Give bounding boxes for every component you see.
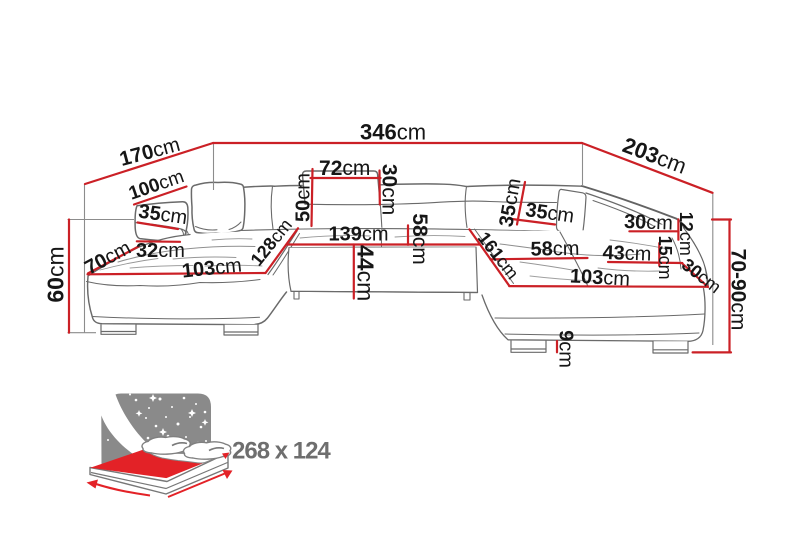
svg-text:346cm: 346cm [360, 120, 426, 145]
svg-text:32cm: 32cm [136, 240, 185, 262]
svg-text:43cm: 43cm [602, 242, 652, 266]
svg-text:58cm: 58cm [530, 238, 579, 261]
svg-text:50cm: 50cm [293, 173, 315, 222]
svg-text:103cm: 103cm [569, 265, 630, 290]
svg-text:72cm: 72cm [319, 157, 370, 180]
svg-text:9cm: 9cm [555, 330, 577, 368]
svg-text:30cm: 30cm [624, 211, 674, 235]
svg-text:139cm: 139cm [328, 224, 388, 246]
svg-text:12cm: 12cm [676, 212, 696, 256]
svg-text:15cm: 15cm [655, 236, 675, 280]
svg-text:58cm: 58cm [408, 213, 431, 264]
svg-text:30cm: 30cm [378, 164, 401, 215]
svg-text:70-90cm: 70-90cm [726, 249, 749, 331]
svg-text:60cm: 60cm [43, 246, 69, 302]
svg-text:44cm: 44cm [352, 245, 378, 301]
svg-text:268 x 124: 268 x 124 [232, 438, 331, 465]
